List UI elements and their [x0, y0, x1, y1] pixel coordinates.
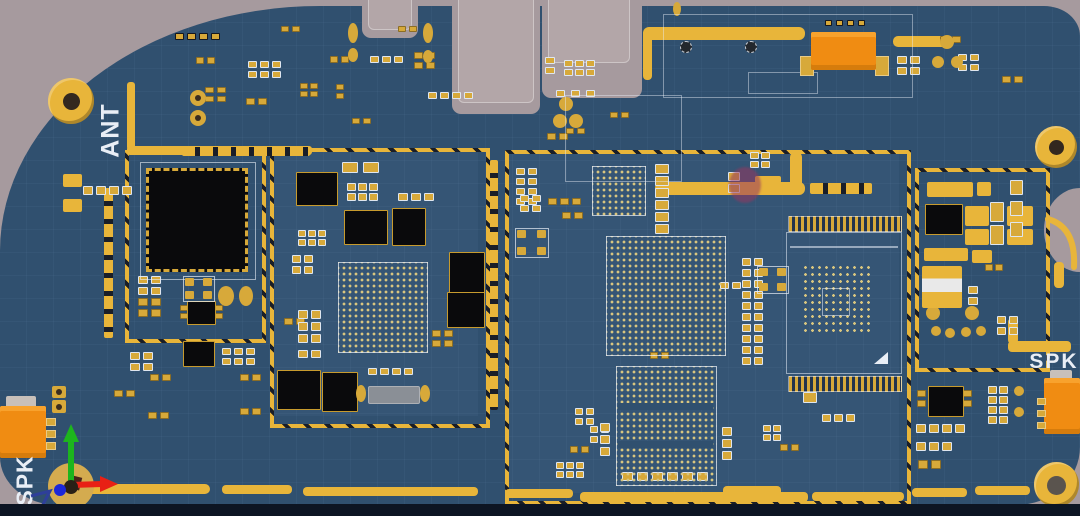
copper-trace: [975, 486, 1030, 495]
smd-pad: [308, 230, 316, 237]
test-point: [932, 56, 944, 68]
smd-pad: [292, 255, 301, 263]
oval-pad: [423, 23, 433, 43]
smd-pad: [750, 152, 759, 159]
test-point: [961, 327, 971, 337]
smd-pad: [347, 193, 356, 201]
bga-row-gap: [618, 441, 713, 448]
copper-trace: [127, 82, 135, 150]
smd-pad: [318, 230, 326, 237]
drill-hole: [195, 95, 201, 101]
smd-pad: [428, 92, 437, 99]
smd-pad: [248, 61, 257, 68]
smd-pad: [130, 352, 140, 360]
dashed-copper-trace: [490, 160, 498, 410]
smd-pad: [822, 414, 831, 422]
y-axis-arrowhead: [63, 424, 79, 442]
fpc-connector-top-right: [811, 32, 876, 70]
copper-trace: [977, 182, 991, 196]
smd-pad: [988, 416, 997, 424]
smd-pad: [300, 83, 308, 89]
dashed-copper-trace: [810, 183, 872, 194]
smd-pad: [999, 416, 1008, 424]
smd-pad: [298, 350, 308, 358]
crystal-pad: [759, 283, 768, 291]
smd-pad: [532, 205, 541, 212]
smd-pad: [999, 406, 1008, 414]
smd-pad: [968, 297, 978, 305]
smd-pad: [143, 352, 153, 360]
smd-pad: [917, 390, 926, 397]
gizmo-center: [64, 480, 78, 494]
smd-pad: [234, 348, 243, 355]
smd-pad: [566, 462, 574, 469]
smd-pad: [252, 374, 261, 381]
oval-pad: [239, 286, 253, 306]
smd-pad: [997, 316, 1006, 324]
smd-pad: [246, 358, 255, 365]
copper-trace: [965, 206, 989, 226]
smd-pad: [556, 471, 564, 478]
smd-pad: [942, 424, 952, 433]
smd-pad: [440, 92, 449, 99]
striped-capacitor: [922, 266, 962, 308]
smd-pad: [358, 183, 367, 191]
smd-pad: [564, 60, 573, 67]
ant-label: ANT: [96, 86, 126, 174]
test-point: [931, 326, 941, 336]
smd-pad: [929, 442, 939, 451]
board-bottom-edge: [0, 504, 1080, 516]
x-axis-arrowhead: [100, 476, 118, 492]
smd-pad: [528, 188, 537, 195]
test-point: [965, 306, 979, 320]
smd-pad: [114, 390, 123, 397]
crystal-pad: [185, 278, 194, 286]
test-point: [1014, 386, 1024, 396]
smd-pad: [963, 390, 972, 397]
smd-pad: [246, 348, 255, 355]
smd-pad: [570, 446, 578, 453]
smd-pad: [252, 408, 261, 415]
smd-pad: [997, 327, 1006, 335]
smd-pad: [586, 69, 595, 76]
smd-pad: [655, 200, 669, 210]
smd-pad: [452, 92, 461, 99]
smd-pad: [773, 425, 781, 432]
smd-pad: [988, 396, 997, 404]
test-point: [926, 306, 940, 320]
smd-pad: [342, 162, 358, 173]
smd-pad: [122, 186, 132, 195]
smd-pad: [995, 264, 1003, 271]
smd-pad: [791, 444, 799, 451]
smd-pad: [310, 83, 318, 89]
smd-pad: [292, 266, 301, 274]
connector-anchor-pad: [875, 56, 889, 76]
smd-pad: [187, 33, 196, 40]
smd-pad: [547, 133, 556, 140]
gray-component: [368, 386, 420, 404]
smd-pad: [308, 239, 316, 246]
test-point: [976, 326, 986, 336]
smd-pad: [83, 186, 93, 195]
smd-pad: [281, 26, 289, 32]
smd-pad: [160, 412, 169, 419]
smd-pad: [516, 188, 525, 195]
ic-chip: [187, 301, 216, 325]
smd-pad: [148, 412, 157, 419]
ic-chip: [277, 370, 321, 410]
smd-pad: [575, 418, 583, 425]
smd-pad: [722, 439, 732, 448]
smd-pad: [138, 287, 148, 295]
copper-trace: [924, 248, 968, 261]
ic-chip: [296, 172, 338, 206]
screw-hole-center: [63, 93, 80, 110]
ic-chip: [447, 292, 485, 328]
smd-pad: [575, 408, 583, 415]
smd-pad: [999, 396, 1008, 404]
smd-pad: [126, 390, 135, 397]
smd-pad: [424, 193, 434, 201]
smd-pad: [96, 186, 106, 195]
spk-right-label: SPK: [1028, 350, 1080, 374]
crystal-pad: [537, 247, 546, 255]
smd-pad: [581, 446, 589, 453]
smd-pad: [363, 118, 371, 124]
speaker-connector-right: [1044, 378, 1080, 434]
smd-pad: [394, 56, 403, 63]
test-point: [940, 35, 954, 49]
connector-lead: [1037, 398, 1046, 405]
smd-pad: [311, 350, 321, 358]
smd-pad: [990, 225, 1004, 245]
smd-pad: [304, 255, 313, 263]
connector-lead: [1037, 422, 1046, 429]
smd-pad: [363, 162, 379, 173]
smd-pad: [564, 69, 573, 76]
smd-pad: [1010, 180, 1023, 195]
crystal-pad: [777, 283, 786, 291]
smd-pad: [931, 460, 941, 469]
smd-pad: [742, 258, 751, 266]
smd-pad: [586, 418, 594, 425]
smd-pad: [292, 26, 300, 32]
smd-pad: [528, 178, 537, 185]
smd-pad: [304, 266, 313, 274]
smd-pad: [130, 363, 140, 371]
smd-pad: [311, 334, 321, 343]
smd-pad: [246, 98, 255, 105]
test-point: [945, 328, 955, 338]
smd-pad: [572, 198, 581, 205]
smd-pad: [532, 195, 541, 202]
memory-pad-row-bottom: [788, 376, 902, 392]
ic-chip: [322, 372, 358, 412]
smd-pad: [773, 434, 781, 441]
smd-pad: [516, 178, 525, 185]
oval-pad: [348, 23, 358, 43]
smd-pad: [464, 92, 473, 99]
smd-pad: [545, 57, 555, 64]
smd-pad: [272, 71, 281, 78]
smd-pad: [600, 447, 610, 456]
smd-pad: [222, 348, 231, 355]
connector-lead: [1037, 410, 1046, 417]
smd-pad: [240, 374, 249, 381]
smd-pad: [655, 212, 669, 222]
smd-pad: [754, 357, 763, 365]
smd-pad: [398, 26, 406, 32]
courtyard-outline: [565, 95, 682, 182]
smd-pad: [575, 60, 584, 67]
smd-pad: [151, 287, 161, 295]
copper-trace: [965, 229, 989, 245]
smd-pad: [222, 358, 231, 365]
smd-pad: [205, 87, 214, 93]
ic-chip: [344, 210, 388, 245]
screw-hole-center: [1049, 140, 1064, 155]
smd-pad: [846, 414, 855, 422]
copper-trace: [303, 487, 478, 496]
oval-pad: [423, 50, 433, 63]
bga-footprint: [606, 236, 726, 356]
smd-pad: [742, 302, 751, 310]
smd-pad: [970, 64, 979, 71]
smd-pad: [780, 444, 788, 451]
smd-pad: [590, 426, 598, 433]
smd-pad: [942, 442, 952, 451]
smd-pad: [444, 330, 453, 337]
smd-pad: [742, 346, 751, 354]
bga-footprint: [338, 262, 428, 353]
smd-pad: [754, 258, 763, 266]
smd-pad: [575, 69, 584, 76]
smd-pad: [370, 56, 379, 63]
smd-pad: [586, 60, 595, 67]
copper-trace: [790, 152, 802, 194]
copper-trace: [63, 199, 82, 212]
smd-pad: [955, 424, 965, 433]
screw-hole-center: [1047, 476, 1066, 495]
smd-pad: [655, 224, 669, 234]
smd-pad: [248, 71, 257, 78]
smd-pad: [358, 193, 367, 201]
smd-pad: [298, 322, 308, 331]
smd-pad: [272, 61, 281, 68]
smd-pad: [742, 269, 751, 277]
smd-pad: [150, 374, 159, 381]
smd-pad: [260, 61, 269, 68]
smd-pad: [298, 230, 306, 237]
smd-pad: [215, 313, 223, 319]
memory-inner-line: [790, 246, 898, 248]
smd-pad: [742, 357, 751, 365]
smd-pad: [369, 193, 378, 201]
ic-chip: [392, 208, 426, 246]
smd-pad: [162, 374, 171, 381]
smd-pad: [742, 291, 751, 299]
smd-pad: [298, 310, 308, 319]
smd-pad: [432, 330, 441, 337]
smd-pad: [970, 54, 979, 61]
smd-pad: [215, 305, 223, 311]
smd-pad: [988, 406, 997, 414]
oval-pad: [356, 385, 366, 402]
smd-pad: [576, 471, 584, 478]
smd-pad: [380, 368, 389, 375]
crystal-pad: [185, 291, 194, 299]
smd-pad: [143, 363, 153, 371]
smd-pad: [590, 436, 598, 443]
smd-pad: [426, 62, 435, 69]
smd-pad: [545, 67, 555, 74]
ic-chip: [928, 386, 964, 417]
smd-pad: [548, 198, 557, 205]
dashed-copper-trace: [104, 188, 113, 338]
smd-pad: [260, 71, 269, 78]
smd-pad: [284, 318, 293, 325]
smd-pad: [205, 96, 214, 102]
smd-pad: [432, 340, 441, 347]
smd-pad: [151, 298, 161, 306]
memory-pad-row-top: [788, 216, 902, 232]
smd-pad: [199, 33, 208, 40]
smd-pad: [722, 427, 732, 436]
smd-pad: [742, 313, 751, 321]
smd-pad: [352, 118, 360, 124]
microphone-component: [729, 167, 761, 203]
smd-pad: [722, 451, 732, 460]
smd-pad: [411, 193, 421, 201]
smd-pad: [298, 239, 306, 246]
smd-pad: [574, 212, 583, 219]
smd-pad: [151, 309, 161, 317]
smd-pad: [300, 91, 308, 97]
smd-pad: [392, 368, 401, 375]
smd-pad: [600, 435, 610, 444]
smd-pad: [556, 462, 564, 469]
smd-pad: [414, 62, 423, 69]
ic-chip: [183, 341, 215, 367]
smd-pad: [211, 33, 220, 40]
test-point: [1014, 407, 1024, 417]
smd-pad: [732, 282, 741, 289]
copper-trace: [222, 485, 292, 494]
drill-hole: [56, 404, 62, 410]
smd-pad: [398, 193, 408, 201]
smd-pad: [369, 183, 378, 191]
dashed-copper-trace: [182, 147, 310, 156]
smd-pad: [207, 57, 215, 64]
smd-pad: [258, 98, 267, 105]
bga-row-gap: [618, 403, 713, 410]
drill-hole: [56, 389, 62, 395]
smd-pad: [742, 324, 751, 332]
smd-pad: [330, 56, 338, 63]
smd-pad: [560, 198, 569, 205]
smd-pad: [929, 424, 939, 433]
smd-pad: [409, 26, 417, 32]
copper-trace: [972, 250, 992, 263]
smd-pad: [240, 408, 249, 415]
smd-pad: [566, 471, 574, 478]
smd-pad: [109, 186, 119, 195]
smd-pad: [336, 84, 344, 90]
smd-pad: [1009, 327, 1018, 335]
smd-pad: [311, 310, 321, 319]
smd-pad: [520, 205, 529, 212]
smd-pad: [444, 340, 453, 347]
smd-pad: [754, 324, 763, 332]
smd-pad: [834, 414, 843, 422]
smd-pad: [138, 298, 148, 306]
smd-pad: [318, 239, 326, 246]
smd-pad: [988, 386, 997, 394]
smd-pad: [990, 202, 1004, 222]
smd-pad: [600, 423, 610, 432]
smd-pad: [368, 368, 377, 375]
crystal-pad: [203, 291, 212, 299]
oval-pad: [420, 385, 430, 402]
crystal-pad: [759, 268, 768, 276]
smd-pad: [516, 168, 525, 175]
smd-pad: [1002, 76, 1011, 83]
smd-pad: [750, 161, 759, 168]
smd-pad: [916, 442, 926, 451]
smd-pad: [985, 264, 993, 271]
smd-pad: [336, 93, 344, 99]
smd-pad: [761, 152, 770, 159]
smd-pad: [217, 87, 226, 93]
smd-pad: [742, 335, 751, 343]
smd-pad: [968, 286, 978, 294]
smd-pad: [916, 424, 926, 433]
smd-pad: [311, 322, 321, 331]
smd-pad: [754, 313, 763, 321]
smd-pad: [754, 346, 763, 354]
smd-pad: [742, 280, 751, 288]
smd-pad: [520, 195, 529, 202]
smd-pad: [138, 309, 148, 317]
copper-trace: [643, 30, 652, 80]
ic-chip: [925, 204, 963, 235]
oval-pad: [218, 286, 234, 306]
smd-pad: [298, 334, 308, 343]
pcb-3d-viewport[interactable]: ANT SPK SPK: [0, 0, 1080, 516]
crystal-pad: [517, 230, 526, 238]
smd-pad: [217, 96, 226, 102]
smd-pad: [1010, 222, 1023, 237]
smd-pad: [1009, 316, 1018, 324]
copper-trace: [812, 492, 904, 501]
smd-pad: [382, 56, 391, 63]
smd-pad: [763, 434, 771, 441]
smd-pad: [917, 400, 926, 407]
smd-pad: [528, 168, 537, 175]
smd-pad: [404, 368, 413, 375]
smd-pad: [234, 358, 243, 365]
crystal-pad: [777, 268, 786, 276]
crystal-pad: [537, 230, 546, 238]
smd-pad: [310, 91, 318, 97]
smd-pad: [763, 425, 771, 432]
drill-hole: [195, 115, 201, 121]
smd-pad: [655, 188, 669, 198]
copper-trace: [505, 489, 573, 498]
courtyard-outline: [140, 162, 256, 280]
